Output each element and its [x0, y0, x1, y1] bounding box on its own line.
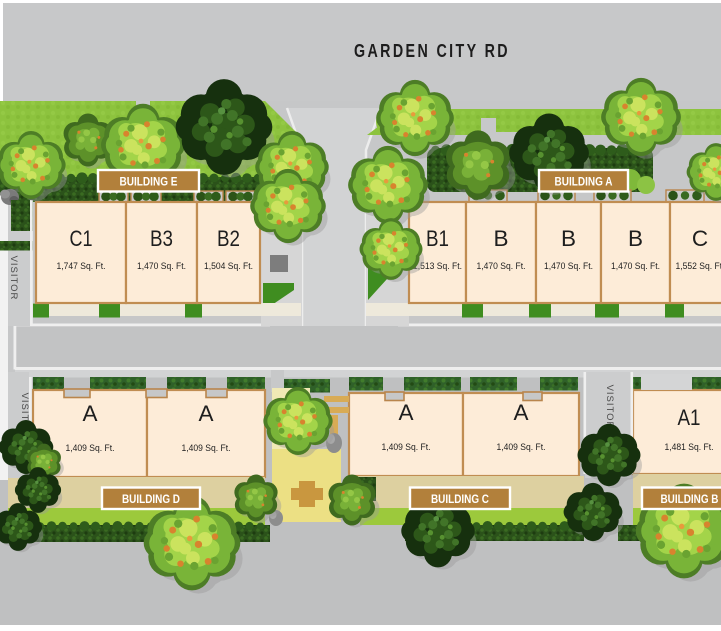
svg-text:A: A: [82, 401, 97, 426]
svg-text:A1: A1: [678, 405, 701, 430]
svg-text:1,481 Sq. Ft.: 1,481 Sq. Ft.: [665, 442, 714, 453]
svg-text:BUILDING E: BUILDING E: [120, 176, 178, 188]
svg-text:GARDEN CITY RD: GARDEN CITY RD: [354, 41, 510, 61]
svg-text:1,470 Sq. Ft.: 1,470 Sq. Ft.: [611, 261, 660, 272]
svg-text:A: A: [513, 400, 528, 425]
svg-text:1,504 Sq. Ft.: 1,504 Sq. Ft.: [204, 261, 253, 272]
svg-text:1,409 Sq. Ft.: 1,409 Sq. Ft.: [66, 443, 115, 454]
svg-text:1,409 Sq. Ft.: 1,409 Sq. Ft.: [182, 443, 231, 454]
svg-text:1,470 Sq. Ft.: 1,470 Sq. Ft.: [544, 261, 593, 272]
svg-text:1,747 Sq. Ft.: 1,747 Sq. Ft.: [57, 261, 106, 272]
svg-text:1,409 Sq. Ft.: 1,409 Sq. Ft.: [497, 442, 546, 453]
svg-text:BUILDING A: BUILDING A: [555, 176, 613, 188]
svg-text:A: A: [198, 401, 213, 426]
svg-text:B: B: [561, 226, 576, 251]
svg-text:1,409 Sq. Ft.: 1,409 Sq. Ft.: [382, 442, 431, 453]
svg-text:B: B: [628, 226, 643, 251]
svg-text:B3: B3: [150, 226, 173, 251]
svg-text:1,470 Sq. Ft.: 1,470 Sq. Ft.: [477, 261, 526, 272]
svg-text:BUILDING D: BUILDING D: [122, 494, 180, 506]
svg-text:1,552 Sq. Ft.: 1,552 Sq. Ft.: [676, 261, 721, 272]
svg-text:BUILDING C: BUILDING C: [431, 494, 489, 506]
svg-text:B2: B2: [217, 226, 240, 251]
svg-text:VISITOR: VISITOR: [604, 385, 615, 430]
svg-text:C: C: [692, 226, 708, 251]
svg-text:B: B: [493, 226, 508, 251]
svg-text:1,470 Sq. Ft.: 1,470 Sq. Ft.: [137, 261, 186, 272]
svg-text:B1: B1: [426, 226, 449, 251]
svg-text:VISITOR: VISITOR: [8, 256, 19, 301]
svg-text:BUILDING B: BUILDING B: [661, 494, 719, 506]
svg-text:C1: C1: [70, 226, 93, 251]
svg-text:A: A: [398, 400, 413, 425]
